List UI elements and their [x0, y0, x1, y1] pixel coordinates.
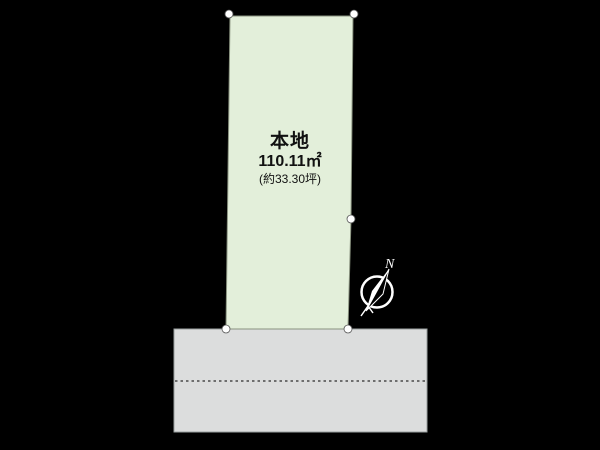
boundary-point-marker [344, 325, 352, 333]
boundary-point-marker [350, 10, 358, 18]
boundary-point-marker [347, 215, 355, 223]
land-parcel [226, 16, 353, 329]
boundary-point-marker [225, 10, 233, 18]
boundary-point-marker [222, 325, 230, 333]
road-area [174, 329, 427, 432]
site-plan-canvas: N 本地 110.11㎡ (約33.30坪) [0, 0, 600, 450]
compass-north-label: N [384, 257, 395, 272]
north-compass-icon: N [361, 257, 395, 316]
site-plan-drawing: N [0, 0, 600, 450]
